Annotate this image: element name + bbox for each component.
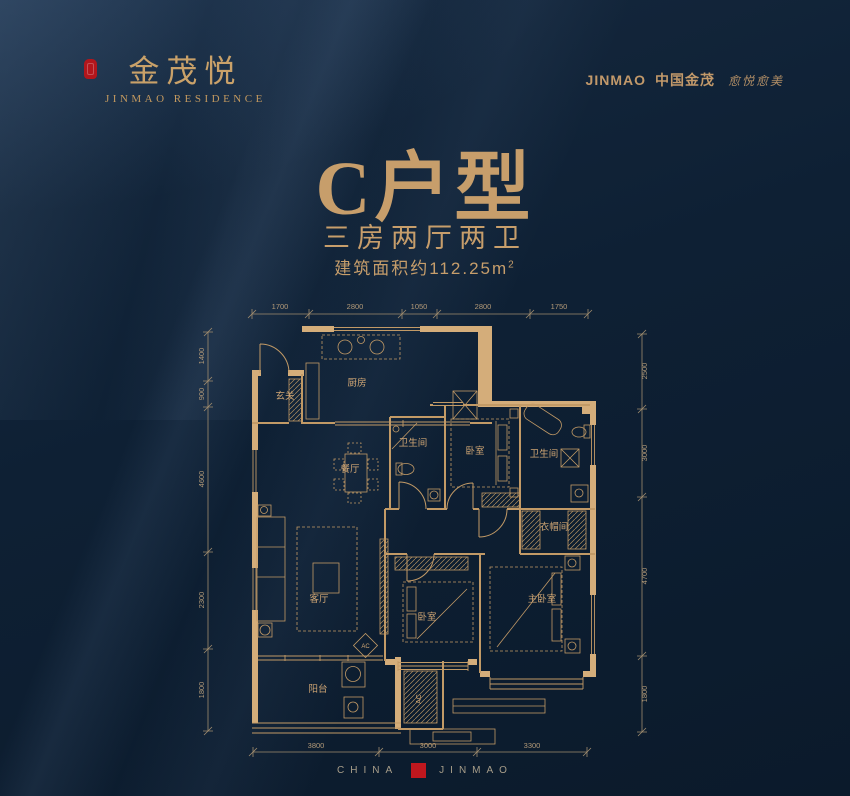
dimension-labels-top: 1700 2800 1050 2800 1750 bbox=[272, 302, 568, 311]
dim-bottom-2: 3000 bbox=[420, 741, 437, 750]
footer-company: JINMAO bbox=[439, 765, 513, 776]
dim-right-2: 3000 bbox=[640, 445, 649, 462]
corporate-logo: JINMAO 中国金茂 愈悦愈美 bbox=[586, 70, 784, 90]
floor-plan: 1700 2800 1050 2800 1750 1400 900 4600 2… bbox=[185, 299, 660, 761]
dim-left-1: 1400 bbox=[197, 348, 206, 365]
dim-top-1: 1700 bbox=[272, 302, 289, 311]
footer-country: CHINA bbox=[337, 765, 398, 776]
brand-name-cn: 金茂悦 bbox=[128, 55, 242, 89]
room-label-bedroom3: 卧室 bbox=[417, 611, 436, 623]
brand-name-en: JINMAO RESIDENCE bbox=[105, 93, 266, 105]
brand-logo-text: 金茂悦 JINMAO RESIDENCE bbox=[105, 55, 266, 105]
room-label-balcony: 阳台 bbox=[308, 683, 327, 695]
dim-left-4: 2300 bbox=[197, 592, 206, 609]
footer-logo: CHINA JINMAO bbox=[0, 763, 850, 778]
area-value: 建筑面积约112.25m bbox=[334, 259, 508, 278]
area-superscript: 2 bbox=[508, 259, 516, 270]
dim-top-4: 2800 bbox=[475, 302, 492, 311]
wardrobe-hatches bbox=[289, 379, 586, 723]
brand-logo: 金茂悦 JINMAO RESIDENCE bbox=[84, 55, 266, 105]
dim-left-2: 900 bbox=[197, 388, 206, 401]
dim-bottom-3: 3300 bbox=[524, 741, 541, 750]
sliding-doors bbox=[258, 420, 470, 661]
dim-right-4: 1800 bbox=[640, 686, 649, 703]
dimension-chain-right bbox=[637, 330, 647, 736]
dim-bottom-1: 3800 bbox=[308, 741, 325, 750]
dim-top-3: 1050 bbox=[411, 302, 428, 311]
dimension-labels-left: 1400 900 4600 2300 1800 bbox=[197, 348, 206, 699]
dim-top-2: 2800 bbox=[347, 302, 364, 311]
red-seal-icon bbox=[84, 59, 97, 79]
dimension-labels-right: 2500 3000 4700 1800 bbox=[640, 363, 649, 703]
room-label-bath1: 卫生间 bbox=[399, 437, 428, 449]
dim-right-3: 4700 bbox=[640, 568, 649, 585]
dim-left-5: 1800 bbox=[197, 682, 206, 699]
room-label-dining: 餐厅 bbox=[340, 463, 360, 475]
ac-label-closet: AC bbox=[416, 694, 423, 704]
room-label-master: 主卧室 bbox=[528, 593, 557, 605]
room-label-entry: 玄关 bbox=[275, 390, 295, 402]
dimension-labels-bottom: 3800 3000 3300 bbox=[308, 741, 541, 750]
layout-subtitle: 三房两厅两卫 bbox=[0, 216, 850, 255]
corporate-wordmark: JINMAO bbox=[586, 72, 646, 88]
dim-top-5: 1750 bbox=[551, 302, 568, 311]
ac-label-diamond: AC bbox=[361, 644, 370, 650]
area-text: 建筑面积约112.25m2 bbox=[0, 254, 850, 279]
corporate-slogan-calligraphy: 愈悦愈美 bbox=[728, 72, 784, 89]
dim-left-3: 4600 bbox=[197, 471, 206, 488]
room-label-bath2: 卫生间 bbox=[530, 448, 559, 460]
room-label-kitchen: 厨房 bbox=[347, 377, 366, 389]
room-label-cloakroom: 衣帽间 bbox=[540, 521, 569, 533]
footer-red-square-icon bbox=[411, 763, 426, 778]
corporate-name-cn: 中国金茂 bbox=[655, 70, 715, 90]
room-label-living: 客厅 bbox=[309, 593, 329, 605]
dim-right-1: 2500 bbox=[640, 363, 649, 380]
room-label-bedroom2: 卧室 bbox=[465, 445, 484, 457]
